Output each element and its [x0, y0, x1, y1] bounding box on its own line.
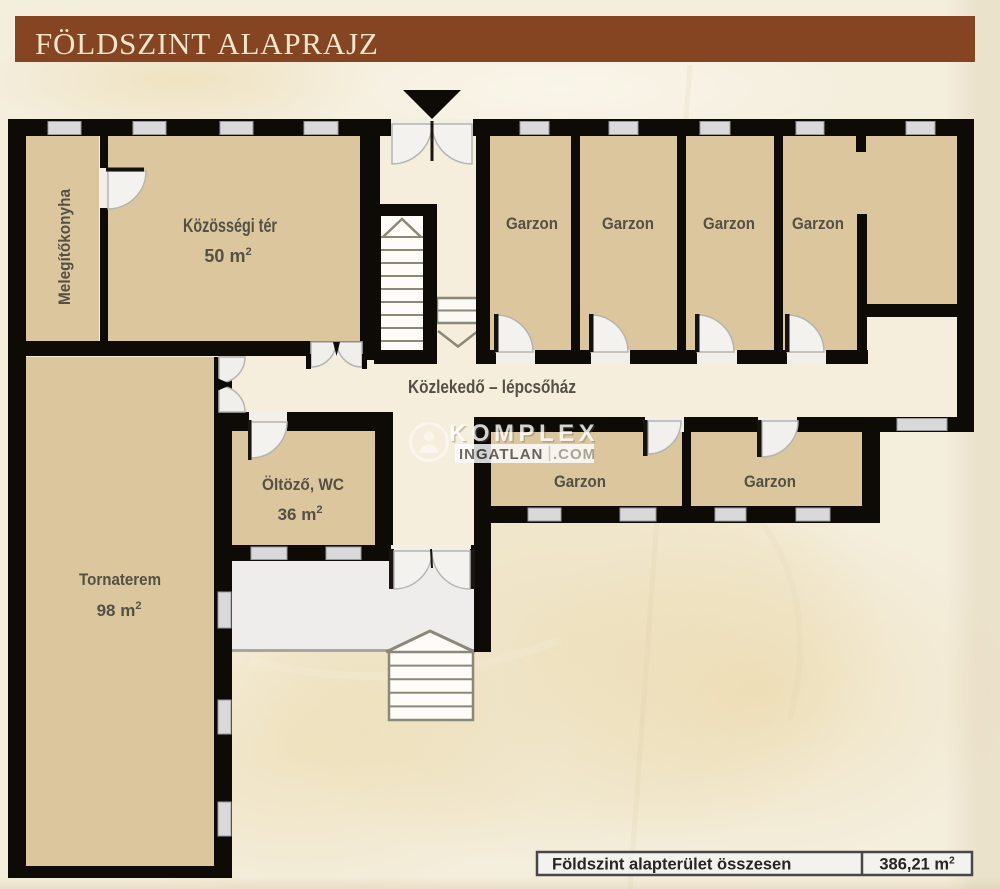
- svg-text:Földszint alapterület összesen: Földszint alapterület összesen: [552, 856, 791, 874]
- svg-text:Közlekedő – lépcsőház: Közlekedő – lépcsőház: [408, 377, 576, 397]
- svg-text:INGATLAN: INGATLAN: [459, 446, 543, 463]
- svg-text:50 m2: 50 m2: [204, 246, 251, 266]
- svg-text:Öltöző, WC: Öltöző, WC: [262, 475, 344, 494]
- svg-text:Garzon: Garzon: [792, 214, 844, 233]
- svg-text:36 m2: 36 m2: [278, 504, 323, 524]
- svg-text:Tornaterem: Tornaterem: [79, 570, 161, 589]
- svg-text:FÖLDSZINT ALAPRAJZ: FÖLDSZINT ALAPRAJZ: [35, 26, 379, 61]
- svg-text:Garzon: Garzon: [602, 214, 654, 233]
- svg-text:KOMPLEX: KOMPLEX: [449, 420, 599, 447]
- svg-text:Garzon: Garzon: [744, 472, 796, 491]
- svg-text:98 m2: 98 m2: [97, 600, 142, 620]
- svg-text:Közösségi tér: Közösségi tér: [183, 216, 277, 237]
- svg-text:Garzon: Garzon: [554, 472, 606, 491]
- svg-text:.COM: .COM: [553, 446, 596, 463]
- svg-text:Garzon: Garzon: [703, 214, 755, 233]
- svg-text:Melegítőkonyha: Melegítőkonyha: [55, 189, 74, 305]
- svg-text:386,21 m2: 386,21 m2: [879, 856, 955, 874]
- svg-text:Garzon: Garzon: [506, 214, 558, 233]
